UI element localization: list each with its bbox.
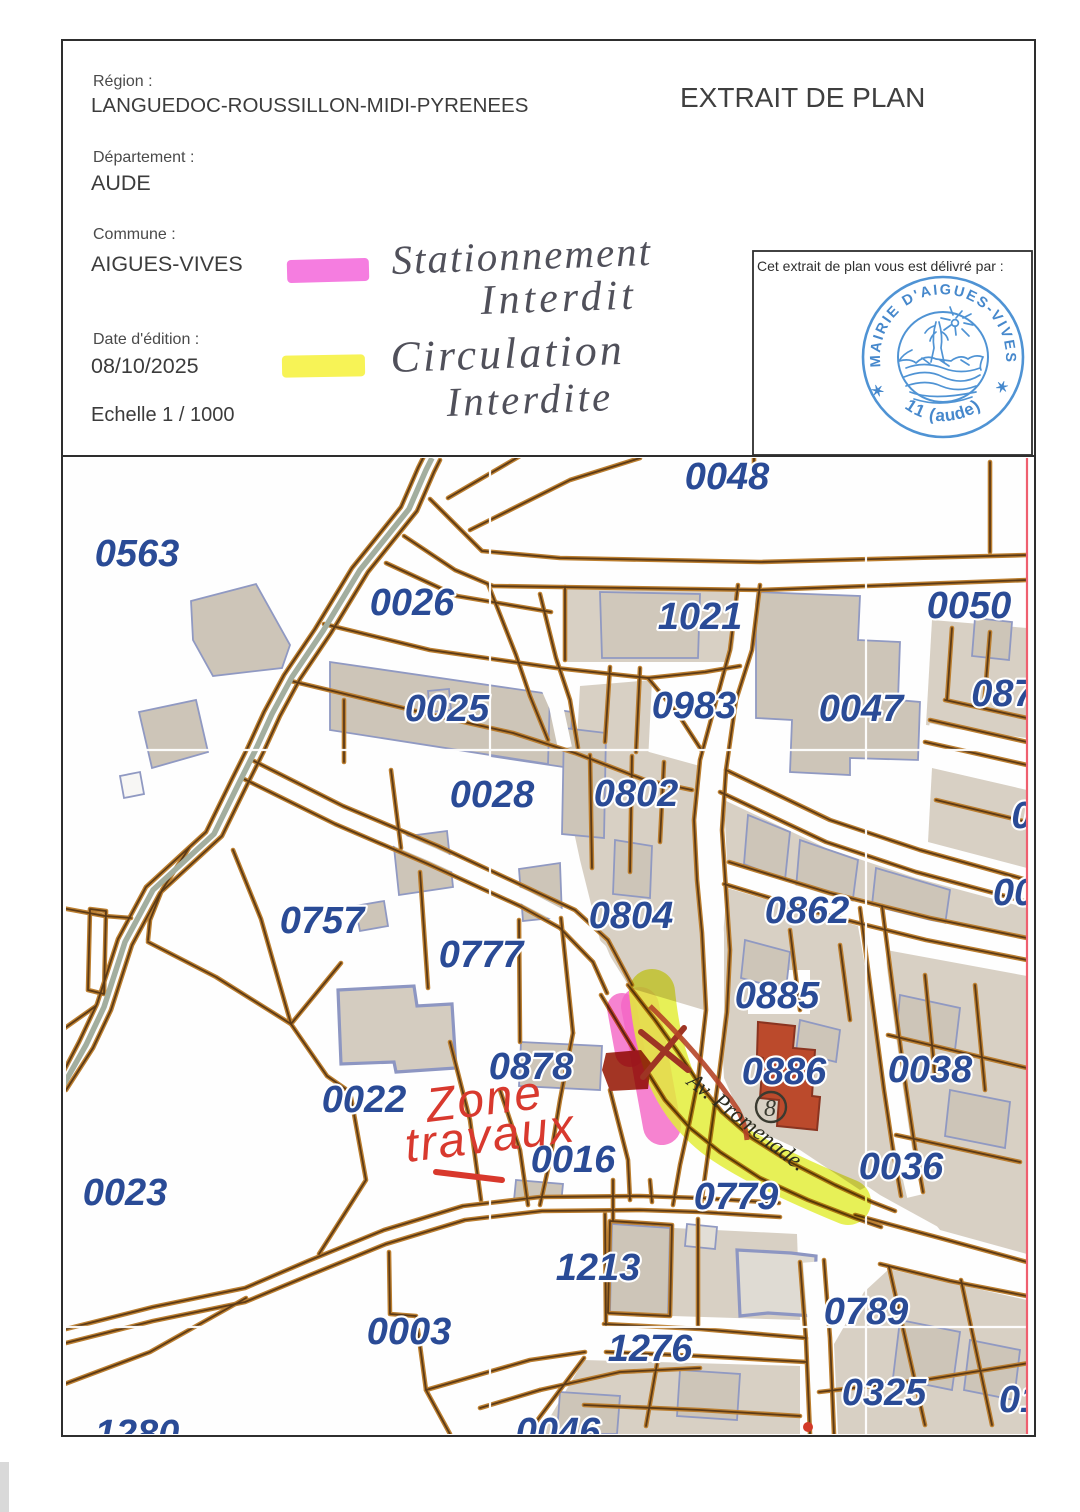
svg-text:1213: 1213 <box>556 1247 641 1289</box>
svg-text:0048: 0048 <box>685 456 770 498</box>
svg-text:0804: 0804 <box>589 895 674 937</box>
svg-text:Département :: Département : <box>93 149 194 166</box>
svg-text:0885: 0885 <box>735 975 820 1017</box>
svg-text:0563: 0563 <box>95 533 180 575</box>
svg-text:Région :: Région : <box>93 73 153 90</box>
svg-text:0023: 0023 <box>83 1172 168 1214</box>
svg-text:00: 00 <box>993 872 1035 914</box>
svg-text:Interdite: Interdite <box>445 373 614 425</box>
svg-text:0050: 0050 <box>927 585 1012 627</box>
svg-text:0036: 0036 <box>859 1146 944 1188</box>
svg-text:0025: 0025 <box>405 688 490 730</box>
svg-text:0047: 0047 <box>819 688 905 730</box>
svg-text:0003: 0003 <box>367 1311 452 1353</box>
svg-text:0038: 0038 <box>888 1049 973 1091</box>
svg-text:0026: 0026 <box>370 582 455 624</box>
svg-text:0777: 0777 <box>439 934 525 976</box>
svg-text:0022: 0022 <box>322 1079 407 1121</box>
svg-text:EXTRAIT DE PLAN: EXTRAIT DE PLAN <box>680 82 925 113</box>
svg-text:0789: 0789 <box>824 1291 909 1333</box>
svg-text:LANGUEDOC-ROUSSILLON-MIDI-PYRE: LANGUEDOC-ROUSSILLON-MIDI-PYRENEES <box>91 94 528 117</box>
svg-text:Date d'édition :: Date d'édition : <box>93 331 199 348</box>
svg-text:1276: 1276 <box>608 1328 693 1370</box>
svg-text:Commune :: Commune : <box>93 226 176 243</box>
svg-text:0886: 0886 <box>742 1051 827 1093</box>
svg-text:0757: 0757 <box>280 900 366 942</box>
svg-text:1280: 1280 <box>95 1413 180 1455</box>
svg-text:0028: 0028 <box>450 774 535 816</box>
svg-text:Cet extrait de plan vous est d: Cet extrait de plan vous est délivré par… <box>757 258 1004 274</box>
svg-text:1021: 1021 <box>658 596 743 638</box>
svg-text:0325: 0325 <box>842 1372 927 1414</box>
svg-text:0983: 0983 <box>652 685 737 727</box>
svg-text:0: 0 <box>1011 795 1032 837</box>
svg-text:8: 8 <box>764 1096 776 1122</box>
svg-text:0802: 0802 <box>594 773 679 815</box>
svg-text:Echelle 1 / 1000: Echelle 1 / 1000 <box>91 404 234 426</box>
svg-text:0862: 0862 <box>765 890 850 932</box>
svg-text:0779: 0779 <box>694 1176 779 1218</box>
svg-text:0046: 0046 <box>516 1411 601 1453</box>
svg-text:08/10/2025: 08/10/2025 <box>91 354 199 378</box>
svg-text:AIGUES-VIVES: AIGUES-VIVES <box>91 252 243 276</box>
svg-text:Interdit: Interdit <box>479 273 638 324</box>
svg-text:AUDE: AUDE <box>91 171 151 195</box>
